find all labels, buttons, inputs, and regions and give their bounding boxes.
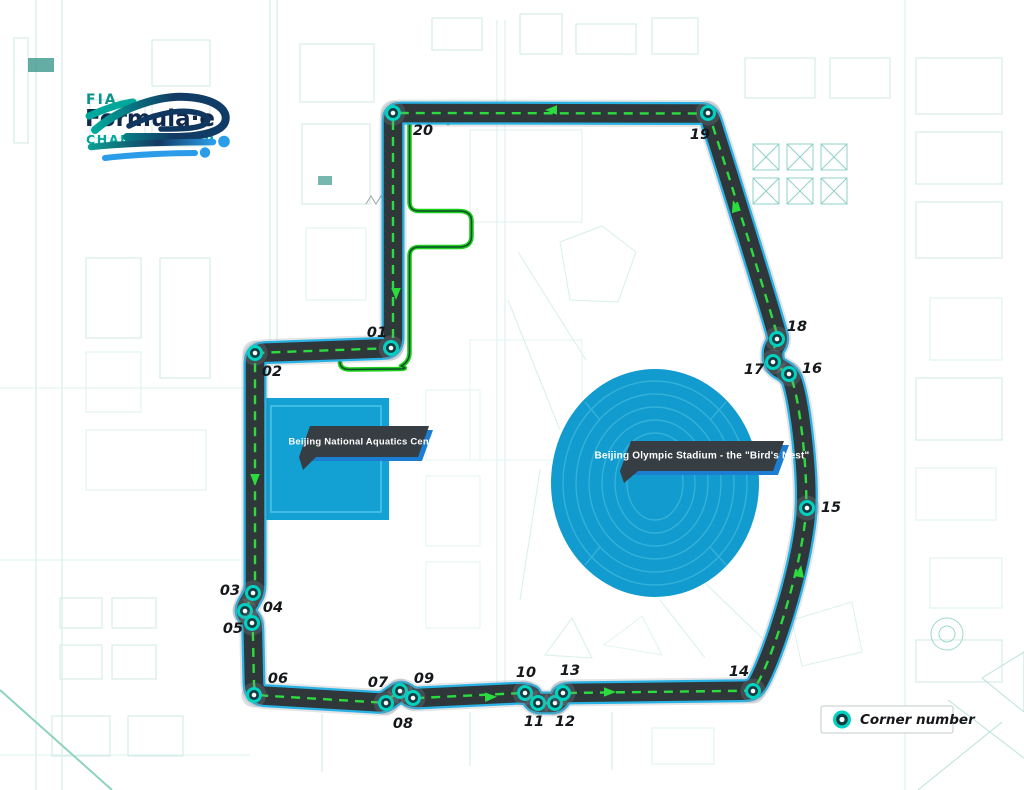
legend: Corner number	[821, 706, 976, 733]
corner-marker-dot	[771, 360, 776, 365]
corner-marker-dot	[787, 372, 792, 377]
stadium-banner-label: Beijing Olympic Stadium - the "Bird's Ne…	[595, 451, 810, 462]
corner-number-label: 02	[262, 364, 282, 380]
legend-label: Corner number	[860, 712, 976, 728]
corner-number-label: 03	[220, 583, 240, 599]
corner-marker-dot	[536, 701, 541, 706]
aquatics-banner-label: Beijing National Aquatics Centre	[288, 437, 441, 448]
corner-number-label: 01	[367, 325, 387, 341]
corner-number-label: 09	[414, 671, 434, 687]
corner-number-label: 05	[223, 621, 243, 637]
corner-number-label: 10	[516, 665, 536, 681]
corner-marker-dot	[389, 346, 394, 351]
corner-marker-dot	[751, 689, 756, 694]
corner-marker-dot	[411, 696, 416, 701]
corner-number-label: 20	[413, 123, 433, 139]
corner-marker-dot	[398, 689, 403, 694]
corner-marker-dot	[252, 693, 257, 698]
corner-marker-dot	[384, 701, 389, 706]
corner-number-label: 08	[393, 716, 413, 732]
corner-marker-dot	[523, 691, 528, 696]
corner-marker-dot	[706, 111, 711, 116]
corner-number-label: 19	[690, 127, 710, 143]
corner-number-label: 04	[263, 600, 283, 616]
corner-number-label: 15	[821, 500, 841, 516]
formula-e-logo: FIA Formula·e CHAMPIONSHIP	[82, 90, 272, 147]
corner-number-label: 17	[744, 362, 765, 378]
corner-marker-legend-icon-dot	[839, 717, 844, 722]
corner-marker-dot	[253, 351, 258, 356]
corner-marker-dot	[805, 506, 810, 511]
circuit-map-page: 0102030405060708091011121314151617181920…	[0, 0, 1024, 790]
corner-number-label: 13	[560, 663, 580, 679]
corner-number-label: 11	[524, 714, 544, 730]
corner-marker-dot	[391, 111, 396, 116]
corner-number-label: 14	[729, 664, 749, 680]
corner-marker-dot	[251, 591, 256, 596]
corner-number-label: 06	[268, 671, 288, 687]
corner-marker-dot	[775, 337, 780, 342]
olympic-stadium-building	[551, 369, 759, 597]
corner-number-label: 16	[802, 361, 822, 377]
corner-number-label: 07	[368, 675, 389, 691]
corner-number-label: 12	[555, 714, 575, 730]
corner-number-label: 18	[787, 319, 807, 335]
corner-marker-dot	[561, 691, 566, 696]
corner-marker-dot	[250, 621, 255, 626]
formula-e-emblem-icon	[82, 90, 252, 162]
